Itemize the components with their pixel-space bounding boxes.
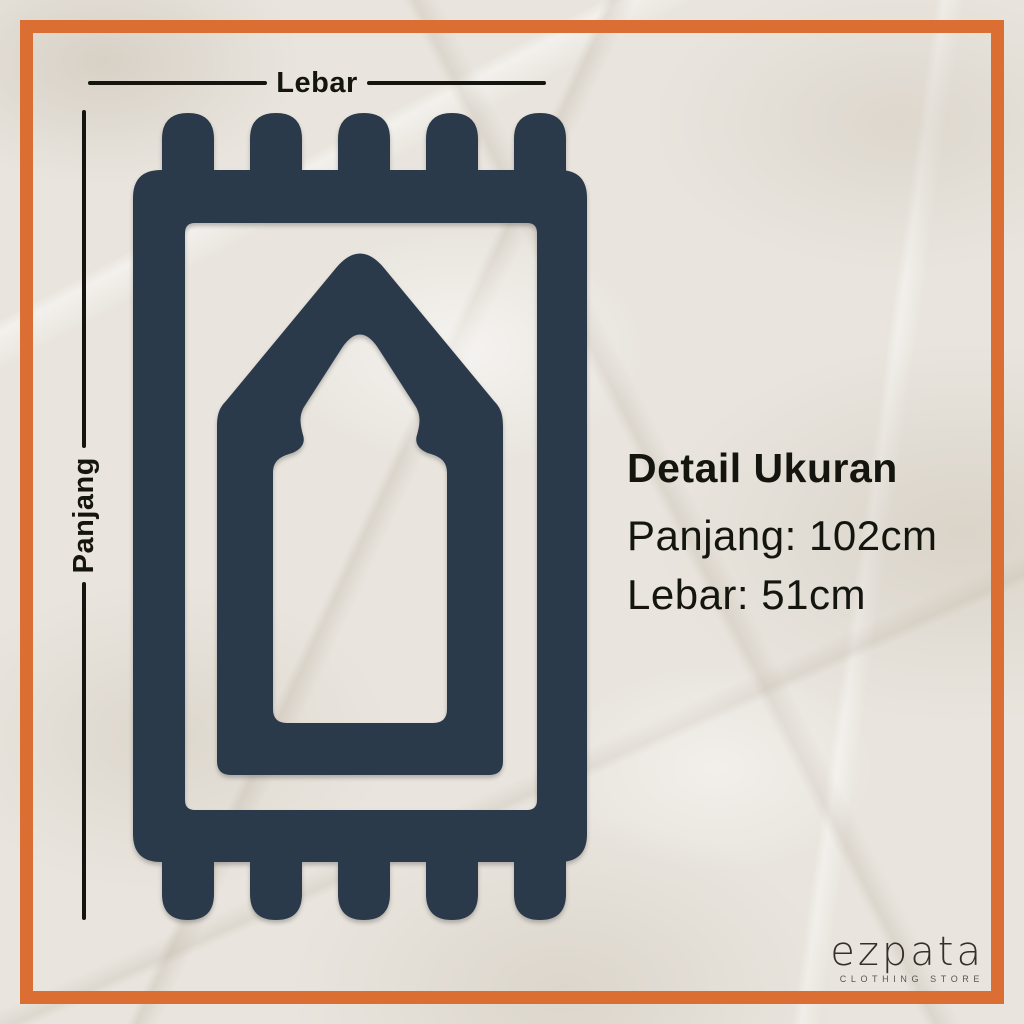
brand-name: ezpata [830,932,984,972]
width-line-left [88,81,267,85]
length-dimension: Panjang [67,110,101,920]
prayer-mat-icon [133,113,587,920]
width-label: Lebar [276,69,357,98]
size-chart-poster: Lebar Panjang Detail Ukuran Panjang: 102… [0,0,1024,1024]
width-value: Lebar: 51cm [627,569,938,622]
size-details: Detail Ukuran Panjang: 102cm Lebar: 51cm [627,444,938,627]
width-dimension: Lebar [88,69,546,97]
details-title: Detail Ukuran [627,444,938,493]
length-label: Panjang [70,457,99,573]
length-value: Panjang: 102cm [627,510,938,563]
brand-logo: ezpata CLOTHING STORE [830,932,984,984]
length-line-bottom [82,582,86,920]
width-line-right [367,81,546,85]
length-line-top [82,110,86,448]
brand-tagline: CLOTHING STORE [830,975,984,984]
mihrab-arch-icon [217,254,503,776]
